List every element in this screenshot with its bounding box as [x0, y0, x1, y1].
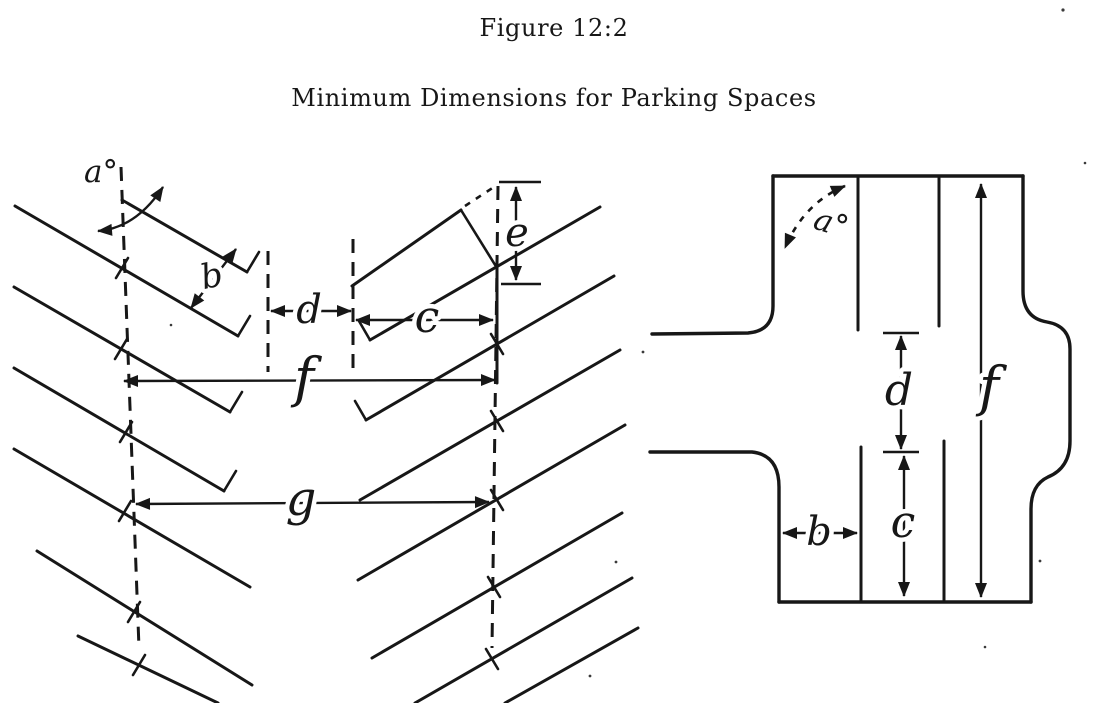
speckle [984, 646, 987, 649]
label-dimension-c: c [415, 292, 440, 343]
speckle [1039, 560, 1042, 563]
label-stall-width-b: b [197, 254, 227, 298]
label-dimension-d: d [296, 287, 322, 333]
curb-tick [486, 649, 498, 669]
stall-end-tick [230, 392, 242, 412]
stall-line [37, 551, 252, 685]
stall-line [360, 350, 620, 500]
label-dimension-b: b [806, 509, 832, 555]
speckle [589, 675, 592, 678]
stall-end-tick [355, 401, 366, 420]
label-dimension-c: c [891, 497, 916, 548]
speckle [1061, 8, 1064, 11]
stall-line [78, 636, 218, 703]
stall-line-dashed-extension [465, 187, 494, 206]
label-angle-a: a° [809, 201, 852, 246]
street-parking-diagram: a° d c f b [650, 176, 1070, 602]
label-dimension-g: g [286, 471, 317, 527]
figure-page: Figure 12:2 Minimum Dimensions for Parki… [0, 0, 1108, 703]
stall-line [372, 513, 622, 658]
stall-end-tick [359, 321, 370, 340]
street-edge-left-upper [652, 176, 773, 334]
dashed-line-left-curb [121, 167, 139, 648]
stall-line [415, 578, 632, 703]
stall-line [366, 276, 614, 420]
label-dimension-f: f [290, 346, 322, 409]
label-dimension-e: e [505, 210, 529, 256]
stall-line [352, 210, 461, 286]
figure-canvas: a° b d c e f g [0, 0, 1108, 703]
stall-end-tick [247, 252, 259, 272]
labels-right-diagram: a° d c f b [806, 201, 1007, 555]
speckle [642, 351, 645, 354]
speckle [170, 324, 173, 327]
label-dimension-d: d [885, 365, 913, 416]
angled-parking-diagram: a° b d c e f g [14, 154, 638, 703]
curb-tick [491, 411, 503, 431]
stall-line [122, 200, 247, 272]
stall-end-tick [238, 316, 250, 336]
street-edge-left-lower [650, 452, 779, 602]
street-edge-right [1023, 176, 1070, 602]
stall-end-tick [224, 471, 236, 491]
label-dimension-f: f [975, 355, 1007, 418]
curb-tick [115, 339, 127, 359]
angle-arc-arrow [98, 187, 163, 231]
curb-tick [491, 490, 503, 510]
speckle [1084, 162, 1087, 165]
curb-tick [133, 655, 145, 675]
scan-speckles [170, 8, 1087, 677]
label-angle-a: a° [84, 154, 118, 190]
stall-end-cap [461, 210, 497, 268]
speckle [615, 561, 618, 564]
stall-line [14, 368, 224, 491]
